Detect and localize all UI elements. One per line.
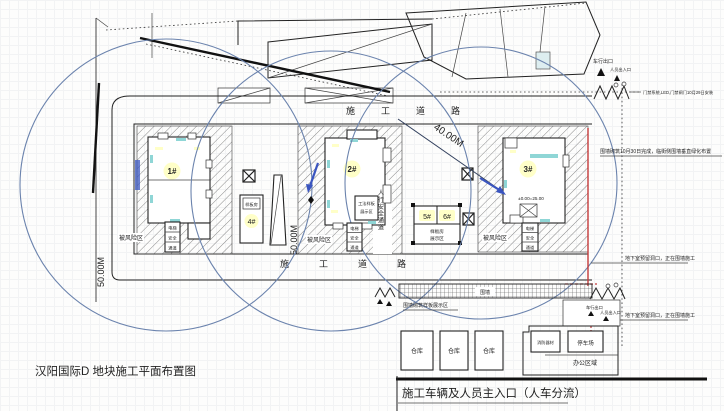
safety-passage-3: 电梯 安全 通道 bbox=[522, 223, 538, 251]
building-4-note: 样板房 bbox=[245, 201, 258, 208]
svg-text:安全: 安全 bbox=[350, 235, 359, 242]
building-56-note-1: 样板房 bbox=[430, 228, 444, 235]
building-3-label: 3# bbox=[524, 165, 533, 174]
risk-zone-label: 被风险区 bbox=[307, 236, 331, 244]
warehouse-2: 仓库 bbox=[448, 347, 460, 355]
risk-zone-label: 被风险区 bbox=[483, 234, 507, 242]
svg-text:通道: 通道 bbox=[350, 244, 359, 251]
entrance-arrow-icon bbox=[597, 68, 605, 76]
risk-zone-label: 被风险区 bbox=[119, 234, 143, 242]
stair-symbol-icon bbox=[520, 204, 537, 217]
svg-text:电梯: 电梯 bbox=[168, 225, 176, 232]
safety-passage-1: 电梯 安全 通道 bbox=[165, 222, 180, 252]
north-gate: 车行出口 人员出入口 门禁系统,LED,门禁闸门10月29日安装 bbox=[593, 58, 714, 99]
south-fence: 围墙 围墙砌筑样板展示区 bbox=[375, 284, 592, 310]
building-5-6-group: 5# 6# 样板房 展示区 bbox=[411, 203, 462, 245]
basement-note-2: 地下室预留洞口，正在围墙施工 bbox=[625, 312, 695, 319]
svg-text:通道: 通道 bbox=[168, 245, 177, 252]
building-5-label: 5# bbox=[423, 214, 431, 221]
parking-box: 停车场 bbox=[577, 339, 594, 347]
pedestrian-corridor-label: 人行安全通道 bbox=[378, 190, 384, 232]
building-3-elevation: ±0.00=25.00 bbox=[518, 196, 544, 201]
gate-icon bbox=[375, 288, 395, 297]
road-label-bottom: 施工道路 bbox=[280, 258, 436, 269]
svg-text:电梯: 电梯 bbox=[350, 225, 358, 232]
building-6-label: 6# bbox=[443, 214, 451, 221]
dimension-west: 50.00M bbox=[96, 257, 106, 287]
construction-hoist-icon bbox=[135, 160, 140, 190]
wall-note: 围墙砌筑10月30日完成，临街侧围墙垂直绿化布置 bbox=[600, 148, 711, 155]
entrance-arrow-icon bbox=[614, 75, 620, 81]
north-gate-pedestrian: 人员出入口 bbox=[610, 66, 631, 73]
sample-box: 工法样板 展示区 bbox=[355, 196, 378, 220]
gate-icon bbox=[590, 288, 625, 299]
gate-icon bbox=[594, 86, 629, 99]
fence-sample-note: 围墙砌筑样板展示区 bbox=[403, 302, 448, 309]
fence-chip-label: 围墙 bbox=[480, 289, 490, 296]
entrance-caption: 施工车辆及人员主入口（人车分流） bbox=[402, 386, 586, 400]
existing-building-room bbox=[536, 52, 550, 69]
office-area-label: 办公区域 bbox=[573, 359, 597, 367]
north-gate-note: 门禁系统,LED,门禁闸门10月29日安装 bbox=[643, 89, 714, 96]
safety-passage-2: 电梯 安全 通道 bbox=[347, 223, 362, 251]
svg-text:安全: 安全 bbox=[526, 235, 535, 242]
svg-text:通道: 通道 bbox=[526, 244, 535, 251]
fence-strip bbox=[399, 284, 592, 298]
building-4-label: 4# bbox=[248, 219, 256, 226]
svg-text:工法样板: 工法样板 bbox=[358, 200, 376, 207]
building-3: 3# ±0.00=25.00 bbox=[503, 138, 569, 223]
south-gate-pedestrian: 人员出入口 bbox=[600, 309, 621, 316]
north-gate-vehicle-exit: 车行出口 bbox=[593, 58, 613, 65]
building-4: 样板房 4# bbox=[240, 175, 286, 245]
drawing-title: 汉阳国际D 地块施工平面布置图 bbox=[35, 365, 196, 378]
dimension-mid: 50.00M bbox=[289, 225, 299, 255]
annotation-notes: 围墙砌筑10月30日完成，临街侧围墙垂直绿化布置 地下室预留洞口，正在围墙施工 … bbox=[591, 148, 722, 320]
warehouse-3: 仓库 bbox=[483, 347, 495, 355]
warehouse-1: 仓库 bbox=[411, 347, 423, 355]
fire-equipment-box: 消防器材 bbox=[537, 339, 554, 346]
svg-text:电梯: 电梯 bbox=[526, 225, 534, 232]
site-plan-canvas: 施工道路 施工道路 1# 2# bbox=[0, 0, 724, 411]
inner-gate bbox=[375, 288, 395, 306]
building-2-label: 2# bbox=[348, 165, 357, 174]
building-1-label: 1# bbox=[168, 167, 177, 176]
svg-text:安全: 安全 bbox=[168, 235, 177, 242]
tower-crane-icon bbox=[243, 170, 255, 182]
basement-note-1: 地下室预留洞口，正在围墙施工 bbox=[625, 255, 695, 262]
road-label-top: 施工道路 bbox=[346, 105, 486, 116]
